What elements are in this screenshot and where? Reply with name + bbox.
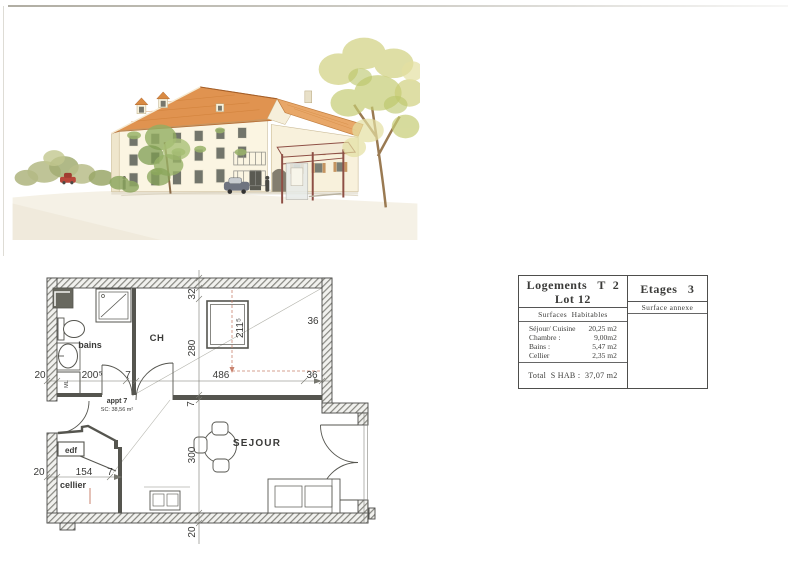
wall-right-sejour-top bbox=[358, 413, 368, 425]
french-door-top bbox=[321, 425, 359, 463]
room-label-cellier: cellier bbox=[60, 480, 87, 490]
dim-20-bottom: 20 bbox=[187, 526, 198, 538]
dim-211-5: 211⁵ bbox=[235, 318, 246, 338]
dim-300: 300 bbox=[187, 446, 198, 463]
table-title: Logements T 2 Lot 12 bbox=[519, 276, 627, 308]
dim-20-left-top: 20 bbox=[34, 370, 46, 381]
annex-empty-cell bbox=[628, 314, 707, 368]
duct bbox=[53, 288, 73, 308]
row-label: Bains : bbox=[519, 342, 584, 351]
dim-7-hall: 7 bbox=[125, 370, 131, 381]
dim-154: 154 bbox=[76, 467, 93, 478]
table-title-line1: Logements T 2 bbox=[527, 278, 620, 292]
floor-plan: bains CH SEJOUR cellier edf appt 7 SC: 3… bbox=[28, 256, 393, 558]
total-surface: Total S HAB : 37,07 m2 bbox=[519, 363, 627, 388]
room-label-edf: edf bbox=[65, 446, 77, 455]
chimney bbox=[305, 91, 312, 103]
wall-bottom bbox=[47, 513, 368, 523]
washer-label: ML bbox=[64, 380, 70, 388]
chair-south bbox=[213, 459, 229, 472]
scan-artifact-top-line bbox=[8, 5, 788, 7]
column-header-habitable: Surfaces Habitables bbox=[519, 308, 627, 322]
room-label-sejour: SEJOUR bbox=[233, 438, 281, 449]
toilet-bowl bbox=[64, 321, 85, 338]
dim-32: 32 bbox=[187, 288, 198, 300]
table-row: Chambre : 9,00m2 bbox=[519, 333, 627, 342]
building-illustration bbox=[10, 8, 420, 240]
chair-north bbox=[212, 422, 228, 435]
row-label: Cellier bbox=[519, 351, 584, 360]
floors-label: Etages 3 bbox=[628, 276, 707, 302]
wall-nub bbox=[60, 523, 75, 530]
wall-step bbox=[322, 403, 368, 413]
table-row: Bains : 5,47 m2 bbox=[519, 342, 627, 351]
wall-trim bbox=[369, 508, 375, 519]
arched-passage bbox=[272, 169, 286, 192]
apartment-area-label: SC: 38,56 m² bbox=[101, 407, 134, 413]
dim-486: 486 bbox=[213, 370, 230, 381]
dim-7-mid: 7 bbox=[186, 401, 197, 407]
surface-table-left-column: Logements T 2 Lot 12 Surfaces Habitables… bbox=[519, 276, 628, 388]
room-label-bains: bains bbox=[78, 340, 102, 350]
row-label: Chambre : bbox=[519, 333, 584, 342]
wall-left-lower bbox=[47, 433, 57, 523]
furniture bbox=[144, 422, 340, 513]
dim-20-left-bottom: 20 bbox=[33, 467, 45, 478]
wall-right-ch bbox=[322, 278, 332, 413]
dim-36-upper: 36 bbox=[307, 316, 319, 327]
row-label: Séjour/ Cuisine bbox=[519, 324, 584, 333]
ch-door bbox=[136, 363, 173, 400]
row-value: 20,25 m2 bbox=[584, 324, 627, 333]
row-value: 5,47 m2 bbox=[584, 342, 627, 351]
annex-total-empty-cell bbox=[628, 368, 707, 388]
dim-7-cellier: 7 bbox=[107, 467, 113, 478]
column-header-annex: Surface annexe bbox=[628, 302, 707, 314]
entry-door-arc bbox=[57, 401, 89, 433]
surface-table-right-column: Etages 3 Surface annexe bbox=[628, 276, 707, 388]
table-row: Cellier 2,35 m2 bbox=[519, 351, 627, 360]
table-row: Séjour/ Cuisine 20,25 m2 bbox=[519, 324, 627, 333]
scanned-document-page: { "illustration": { "type": "watercolor-… bbox=[0, 0, 800, 566]
apartment-label: appt 7 bbox=[107, 398, 128, 405]
dim-36-lower: 36 bbox=[306, 370, 318, 381]
wall-top bbox=[47, 278, 332, 288]
dim-200-5: 200⁵ bbox=[82, 370, 103, 381]
room-areas: Séjour/ Cuisine 20,25 m2 Chambre : 9,00m… bbox=[519, 322, 627, 363]
row-value: 2,35 m2 bbox=[584, 351, 627, 360]
dim-280: 280 bbox=[187, 339, 198, 356]
row-value: 9,00m2 bbox=[584, 333, 627, 342]
table-title-line2: Lot 12 bbox=[555, 292, 591, 306]
shelter-sign bbox=[291, 168, 303, 186]
surface-table: Logements T 2 Lot 12 Surfaces Habitables… bbox=[518, 275, 708, 389]
scan-artifact-left-line bbox=[3, 6, 4, 256]
room-label-ch: CH bbox=[150, 333, 165, 344]
